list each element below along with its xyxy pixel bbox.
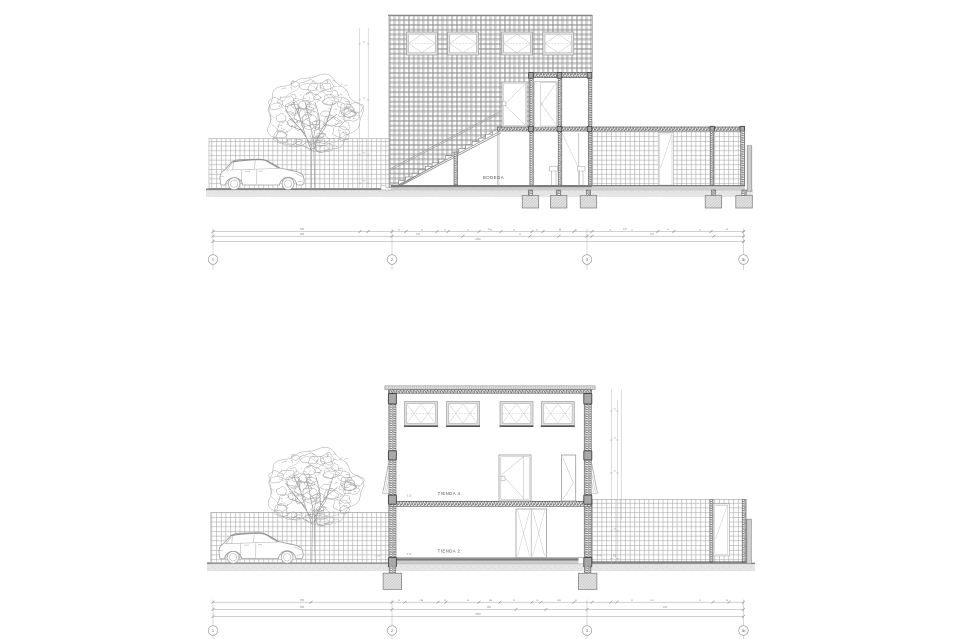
svg-text:3b: 3b [742,629,746,633]
svg-text:3: 3 [586,257,588,262]
svg-text:183: 183 [663,606,668,609]
svg-text:2: 2 [391,628,393,633]
svg-text:593: 593 [300,606,305,609]
svg-text:2966: 2966 [475,238,481,241]
svg-text:2: 2 [391,257,393,262]
svg-text:TIENDA 4: TIENDA 4 [438,491,461,496]
svg-text:593: 593 [300,233,305,236]
svg-text:+0.10: +0.10 [375,556,381,558]
svg-text:TIENDA 2: TIENDA 2 [438,549,461,554]
svg-text:595: 595 [300,599,305,602]
svg-text:0.10: 0.10 [407,554,412,556]
svg-text:1: 1 [212,257,214,262]
svg-text:1: 1 [212,628,214,633]
svg-text:+0.10: +0.10 [596,555,602,557]
svg-text:3b: 3b [742,258,746,262]
svg-text:595: 595 [300,228,305,231]
svg-text:210: 210 [650,233,655,236]
svg-text:3: 3 [586,628,588,633]
svg-text:0.10: 0.10 [407,496,412,498]
svg-text:134: 134 [416,233,421,236]
svg-text:382: 382 [487,606,492,609]
svg-text:BODEGA: BODEGA [483,175,504,180]
svg-text:2966: 2966 [475,613,481,616]
svg-text:217: 217 [623,228,628,231]
